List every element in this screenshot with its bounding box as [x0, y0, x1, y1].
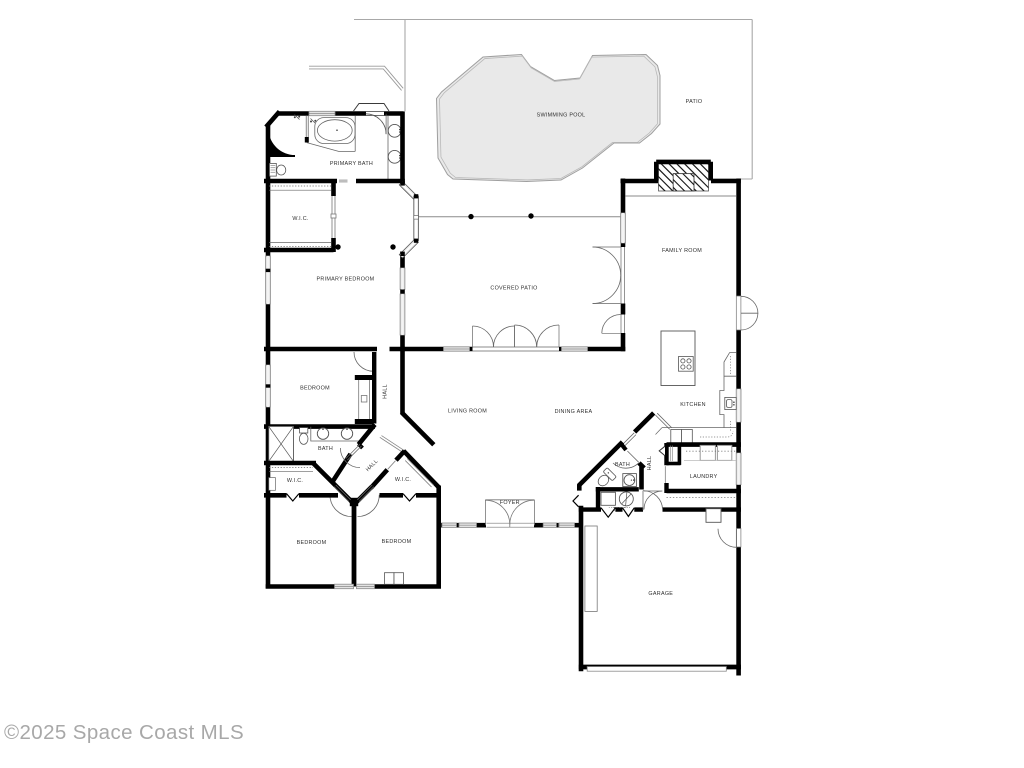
- svg-text:LIVING ROOM: LIVING ROOM: [448, 409, 487, 415]
- svg-text:BEDROOM: BEDROOM: [382, 539, 412, 545]
- svg-text:DINING AREA: DINING AREA: [555, 409, 593, 415]
- svg-text:BATH: BATH: [615, 462, 630, 468]
- svg-text:FOYER: FOYER: [500, 500, 520, 506]
- svg-text:FAMILY ROOM: FAMILY ROOM: [662, 248, 702, 254]
- svg-text:SWIMMING POOL: SWIMMING POOL: [537, 112, 586, 118]
- svg-text:W.I.C.: W.I.C.: [292, 216, 308, 222]
- svg-text:W.I.C.: W.I.C.: [395, 477, 411, 483]
- svg-text:GARAGE: GARAGE: [648, 591, 673, 597]
- svg-text:BEDROOM: BEDROOM: [297, 540, 327, 546]
- svg-text:PRIMARY BEDROOM: PRIMARY BEDROOM: [317, 277, 375, 283]
- svg-text:PATIO: PATIO: [686, 99, 703, 105]
- svg-text:©2025 Space Coast MLS: ©2025 Space Coast MLS: [4, 721, 244, 744]
- svg-text:BEDROOM: BEDROOM: [300, 386, 330, 392]
- svg-text:BATH: BATH: [318, 446, 333, 452]
- svg-text:W.I.C.: W.I.C.: [287, 478, 303, 484]
- svg-text:PRIMARY BATH: PRIMARY BATH: [330, 161, 373, 167]
- svg-text:COVERED PATIO: COVERED PATIO: [490, 286, 537, 292]
- svg-text:HALL: HALL: [647, 456, 653, 471]
- svg-text:LAUNDRY: LAUNDRY: [690, 474, 718, 480]
- svg-text:KITCHEN: KITCHEN: [680, 402, 706, 408]
- svg-text:HALL: HALL: [383, 384, 389, 399]
